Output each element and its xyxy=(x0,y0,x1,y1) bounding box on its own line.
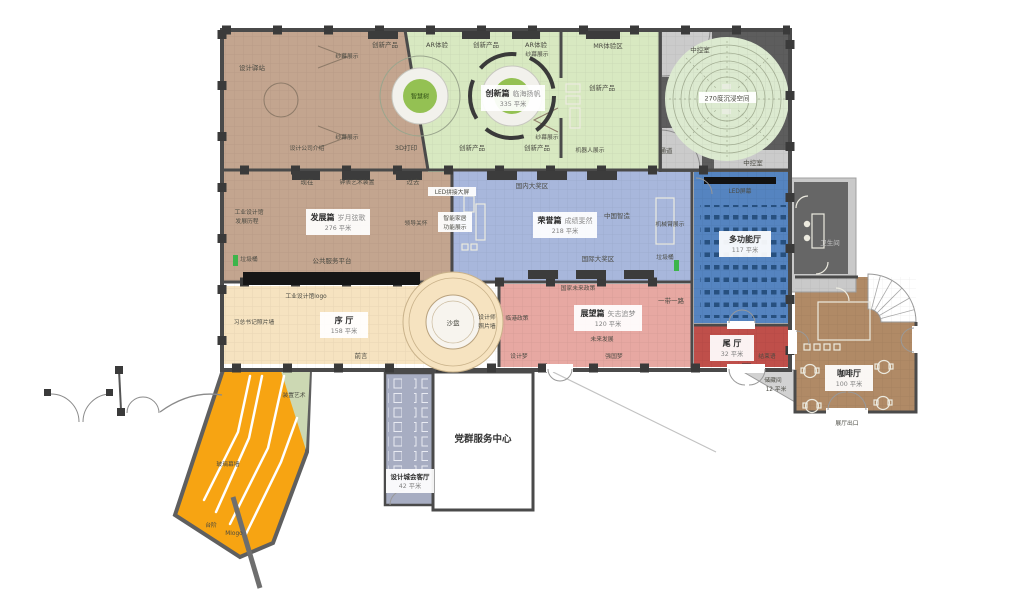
label-sand-table: 沙盘 xyxy=(447,318,461,327)
cafe-area: 100 平米 xyxy=(836,379,863,388)
label-innovative-product: 创新产品 xyxy=(372,40,398,49)
svg-text:发展篇岁月弦歌: 发展篇岁月弦歌 xyxy=(310,212,366,222)
floor-plan-svg: 设计驿站 纱幕展示 纱幕展示 纱幕展示 纱幕展示 创新产品 创新产品 创新产品 … xyxy=(0,0,1024,599)
label-public-platform: 公共服务平台 xyxy=(313,256,352,265)
label-hall-exit: 展厅出口 xyxy=(835,419,858,427)
development-subtitle: 岁月弦歌 xyxy=(338,213,366,222)
label-belt-road: 一带一路 xyxy=(658,296,685,305)
floor-plan: 设计驿站 纱幕展示 纱幕展示 纱幕展示 纱幕展示 创新产品 创新产品 创新产品 … xyxy=(0,0,1024,599)
wisdom-tree-name: 智慧树 xyxy=(411,93,429,101)
label-design-company-intro: 设计公司介绍 xyxy=(290,144,325,152)
label-m-logo: Mlogo xyxy=(225,531,243,537)
honor-subtitle: 成绩斐然 xyxy=(565,216,593,225)
label-design-station: 设计驿站 xyxy=(239,63,266,72)
innovation-subtitle: 临海扬帆 xyxy=(513,89,541,98)
honor-area: 218 平米 xyxy=(552,226,579,235)
label-industrial-history: 工业设计馆 xyxy=(235,208,264,216)
label-designer-wall: 照片墙 xyxy=(478,322,496,330)
cafe-title: 咖啡厅 100 平米 xyxy=(825,365,873,391)
label-control-room: 中控室 xyxy=(743,158,763,167)
label-closing: 结束语 xyxy=(758,352,776,360)
outlook-area: 120 平米 xyxy=(595,319,622,328)
site-diagonal xyxy=(553,372,716,452)
innovation-name: 创新篇 xyxy=(485,88,510,98)
immersive-name: 270度沉浸空间 xyxy=(705,94,750,103)
cafe-name: 咖啡厅 xyxy=(837,368,861,378)
entry-ramp xyxy=(175,370,310,588)
label-passage: 通道 xyxy=(660,146,674,155)
label-ar-experience: AR体验 xyxy=(525,40,547,49)
label-now: 现在 xyxy=(301,177,315,186)
reception-title: 设计城会客厅 42 平米 xyxy=(386,469,434,493)
multifunction-seats xyxy=(700,205,788,318)
development-title: 发展篇岁月弦歌 276 平米 xyxy=(306,209,370,235)
tail-area: 32 平米 xyxy=(721,349,744,358)
tail-title: 尾 厅 32 平米 xyxy=(710,335,754,361)
innovation-area: 335 平米 xyxy=(500,99,527,108)
label-past: 过去 xyxy=(407,177,421,186)
label-domestic-awards: 国内大奖区 xyxy=(516,181,549,190)
svg-text:荣誉篇成绩斐然: 荣誉篇成绩斐然 xyxy=(537,215,593,225)
label-intl-awards: 国际大奖区 xyxy=(582,254,615,263)
foyer-area: 158 平米 xyxy=(331,326,358,335)
label-robot-arm: 机械臂展示 xyxy=(656,220,685,228)
label-gauze-display: 纱幕展示 xyxy=(525,50,548,58)
label-steps: 台阶 xyxy=(205,521,217,529)
label-glass-wall: 玻璃幕墙 xyxy=(216,460,239,468)
entrance-gate xyxy=(44,366,222,422)
development-area: 276 平米 xyxy=(325,223,352,232)
outlook-subtitle: 矢志追梦 xyxy=(608,309,636,318)
label-mr-zone: MR体验区 xyxy=(593,41,623,50)
label-clock-art: 钟表艺术装置 xyxy=(340,178,375,186)
label-smart-home: 功能展示 xyxy=(443,223,466,231)
multifunction-name: 多功能厅 xyxy=(729,234,761,244)
label-leader-care: 领导关怀 xyxy=(404,219,427,227)
reception-name: 设计城会客厅 xyxy=(391,472,431,481)
label-innovative-product: 创新产品 xyxy=(459,143,485,152)
cafe-grid xyxy=(795,277,916,412)
label-photo-wall: 习总书记照片墙 xyxy=(234,318,275,326)
reception-area: 42 平米 xyxy=(399,481,422,490)
outlook-name: 展望篇 xyxy=(580,308,605,318)
honor-name: 荣誉篇 xyxy=(537,215,562,225)
label-innovative-product: 创新产品 xyxy=(473,40,499,49)
svg-text:展望篇矢志追梦: 展望篇矢志追梦 xyxy=(580,308,636,318)
label-national-policy: 国家未来政策 xyxy=(561,284,596,292)
label-gauze-display: 纱幕展示 xyxy=(335,52,358,60)
label-storage: 储藏间 xyxy=(764,376,782,384)
party-center-name: 党群服务中心 xyxy=(454,433,512,445)
label-lingang-policy: 临港政策 xyxy=(505,314,528,322)
label-foreword: 前言 xyxy=(355,351,369,360)
label-gauze-display: 纱幕展示 xyxy=(335,133,358,141)
label-design-dream: 设计梦 xyxy=(510,352,528,360)
foyer-logo-bar xyxy=(243,272,420,285)
label-industrial-history: 发展历程 xyxy=(235,217,258,225)
label-led-wall: LED拼接大屏 xyxy=(435,188,470,196)
label-3d-printing: 3D打印 xyxy=(395,143,417,152)
label-installation-art: 装置艺术 xyxy=(282,391,305,399)
tail-name: 尾 厅 xyxy=(722,339,742,348)
reception-tables-left xyxy=(388,378,402,470)
label-led-screen: LED屏幕 xyxy=(729,187,752,195)
zone-storage xyxy=(740,370,795,402)
label-trash-bin: 垃圾桶 xyxy=(240,255,258,263)
label-logo-wall: 工业设计馆logo xyxy=(285,292,327,300)
label-gauze-display: 纱幕展示 xyxy=(535,133,558,141)
svg-text:创新篇临海扬帆: 创新篇临海扬帆 xyxy=(485,88,541,98)
label-robot-display: 机器人展示 xyxy=(576,146,605,154)
label-ar-experience: AR体验 xyxy=(426,40,448,49)
honor-title: 荣誉篇成绩斐然 218 平米 xyxy=(533,212,597,238)
foyer-title: 序 厅 158 平米 xyxy=(320,312,368,338)
label-smart-home: 智能家居 xyxy=(443,214,466,222)
label-future-dev: 未来发展 xyxy=(590,335,613,343)
label-storage-area: 12 平米 xyxy=(766,385,787,393)
innovation-title: 创新篇临海扬帆 335 平米 xyxy=(481,85,545,111)
label-restroom: 卫生间 xyxy=(820,238,840,247)
reception-tables-right xyxy=(414,378,428,470)
multifunction-area: 117 平米 xyxy=(732,245,759,254)
led-screen-bar xyxy=(704,177,776,184)
label-innovative-product: 创新产品 xyxy=(589,83,615,92)
label-designer-wall: 设计师 xyxy=(478,313,496,321)
restroom-annex xyxy=(790,178,856,292)
label-control-room: 中控室 xyxy=(690,45,710,54)
label-trash-bin: 垃圾桶 xyxy=(656,253,674,261)
label-power-dream: 强国梦 xyxy=(605,353,623,360)
label-innovative-product: 创新产品 xyxy=(524,143,550,152)
foyer-name: 序 厅 xyxy=(335,315,354,325)
outlook-title: 展望篇矢志追梦 120 平米 xyxy=(574,305,642,331)
label-china-made: 中国智造 xyxy=(604,211,631,220)
development-name: 发展篇 xyxy=(310,212,335,222)
multifunction-title: 多功能厅 117 平米 xyxy=(719,231,771,257)
